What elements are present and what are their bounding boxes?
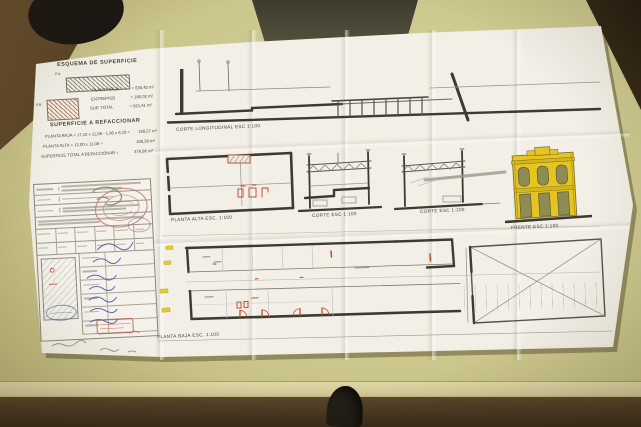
frente-facade-drawing <box>511 145 578 219</box>
planta-alta-drawing <box>167 153 293 214</box>
planta-baja-grid-texture <box>464 282 601 312</box>
value: 376,96 m² <box>134 148 153 154</box>
corte-2-drawing <box>395 149 505 209</box>
handwritten-signatures <box>85 242 137 324</box>
hatch-large-tag: P.A. <box>55 72 62 76</box>
corte-longitudinal-drawing <box>168 60 600 123</box>
corte-1-drawing <box>299 150 381 211</box>
facade-upper-windows <box>518 165 568 187</box>
planta-baja-red-markup <box>213 251 431 317</box>
round-ink-stamp <box>92 184 150 231</box>
stamps-overlay <box>34 179 157 340</box>
photo-scene: ESQUEMA DE SUPERFICIE P.A. P.B. PLANTA B… <box>0 0 641 427</box>
planta-baja-yellow-markup <box>160 246 173 312</box>
pencil-notes <box>52 341 136 353</box>
value: 186,39 m² <box>136 138 155 144</box>
sketch-red-marks <box>48 268 57 284</box>
value: 190,57 m² <box>138 128 157 134</box>
facade-lower-openings <box>519 192 569 218</box>
facade-pediment <box>535 147 550 156</box>
blue-oval-stamp <box>46 305 77 321</box>
hatch-area-small <box>46 98 79 121</box>
hatch-small-tag: P.B. <box>36 103 43 107</box>
red-fixture-marks <box>238 185 268 197</box>
title-block <box>33 178 159 342</box>
